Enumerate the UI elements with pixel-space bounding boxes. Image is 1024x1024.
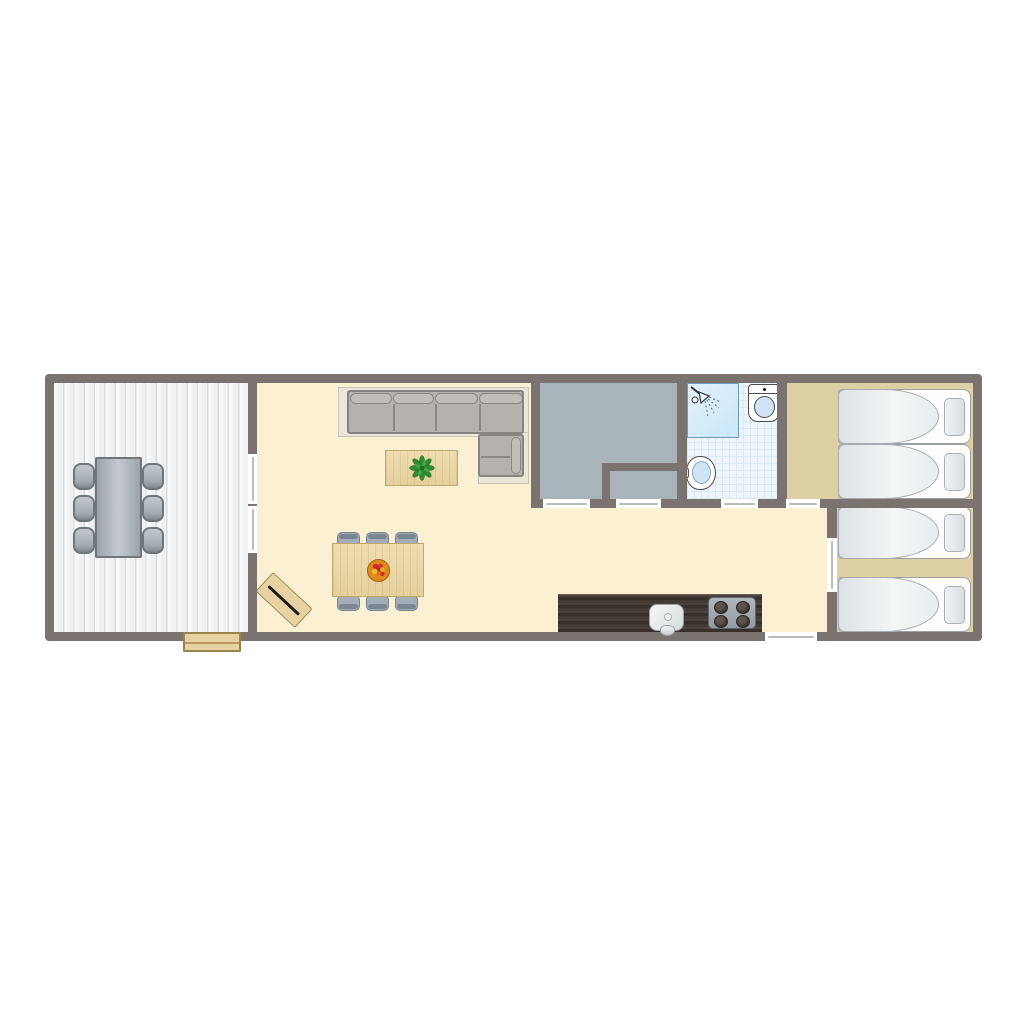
basin-bowl <box>692 461 711 484</box>
deck-chair <box>142 495 164 522</box>
wall-living-bedroom <box>531 374 540 508</box>
chair-back <box>397 534 416 539</box>
cooktop <box>708 597 756 629</box>
duvet <box>838 577 939 632</box>
dining-chair <box>395 595 418 611</box>
sofa-back-cushion <box>435 393 478 404</box>
burner <box>714 615 728 628</box>
deck-chair <box>73 527 95 554</box>
flush-button <box>763 388 766 391</box>
burner <box>736 615 750 628</box>
door-leaf <box>252 509 254 550</box>
chair-back <box>397 604 416 609</box>
sofa-back-cushion <box>393 393 434 404</box>
sofa-seam <box>435 404 437 431</box>
duvet <box>838 444 939 499</box>
corner-sofa <box>347 390 524 434</box>
pillow <box>944 586 965 624</box>
sofa-seam <box>481 456 510 458</box>
deck-sliding-door-lower <box>248 506 257 553</box>
entrance-door <box>765 632 817 641</box>
dining-table <box>332 543 424 597</box>
top-bedroom-door <box>786 499 820 508</box>
deck-chair <box>73 495 95 522</box>
wall-bathroom-bedroom <box>777 374 787 508</box>
step-tread <box>185 642 239 644</box>
door-leaf <box>252 457 254 501</box>
fruit-bowl-icon <box>366 558 391 583</box>
coffee-table <box>385 450 458 486</box>
duvet <box>838 389 939 444</box>
floor-plan <box>45 374 982 641</box>
shower <box>687 383 739 438</box>
door-leaf <box>768 636 814 638</box>
burner <box>714 601 728 614</box>
single-bed <box>838 389 971 444</box>
chair-back <box>339 534 358 539</box>
sofa-back-cushion <box>479 393 523 404</box>
duvet <box>838 506 939 559</box>
door-leaf <box>546 503 587 505</box>
sink-drain <box>664 613 672 621</box>
deck-chair <box>73 463 95 490</box>
page: { "meta": { "type": "floor-plan", "descr… <box>0 0 1024 1024</box>
shower-head-icon <box>689 385 723 419</box>
pillow <box>944 514 965 552</box>
chair-back <box>368 534 387 539</box>
deck-chair <box>142 527 164 554</box>
washbasin <box>686 456 716 490</box>
deck-table <box>95 457 142 558</box>
potted-plant-icon <box>409 455 435 481</box>
single-bed <box>838 577 971 632</box>
kitchen-sink <box>649 604 684 631</box>
corner-sofa-chaise <box>478 434 524 477</box>
wall-closet <box>602 463 687 471</box>
chair-back <box>368 604 387 609</box>
deck-chair <box>142 463 164 490</box>
dining-chair <box>366 595 389 611</box>
deck-steps <box>183 632 241 652</box>
middle-bedroom-door <box>543 499 590 508</box>
deck-sliding-door-upper <box>248 454 257 504</box>
door-leaf <box>619 503 658 505</box>
dining-chair <box>337 595 360 611</box>
sink-faucet <box>660 625 675 636</box>
pillow <box>944 453 965 491</box>
door-leaf <box>724 503 755 505</box>
bottom-bedroom-door <box>827 538 837 592</box>
closet-door <box>616 499 661 508</box>
sofa-seam <box>393 404 395 431</box>
door-leaf <box>789 503 817 505</box>
sofa-back-cushion <box>350 393 392 404</box>
single-bed <box>838 506 971 559</box>
sofa-seam <box>479 404 481 431</box>
wall-bedroom-bathroom <box>677 374 687 508</box>
toilet-bowl <box>754 396 775 418</box>
single-bed <box>838 444 971 499</box>
wall-closet <box>602 463 610 499</box>
pillow <box>944 398 965 436</box>
sofa-bolster <box>511 437 521 474</box>
bathroom-door <box>721 499 758 508</box>
chair-back <box>339 604 358 609</box>
toilet <box>748 384 780 422</box>
burner <box>736 601 750 614</box>
door-leaf <box>831 541 833 589</box>
